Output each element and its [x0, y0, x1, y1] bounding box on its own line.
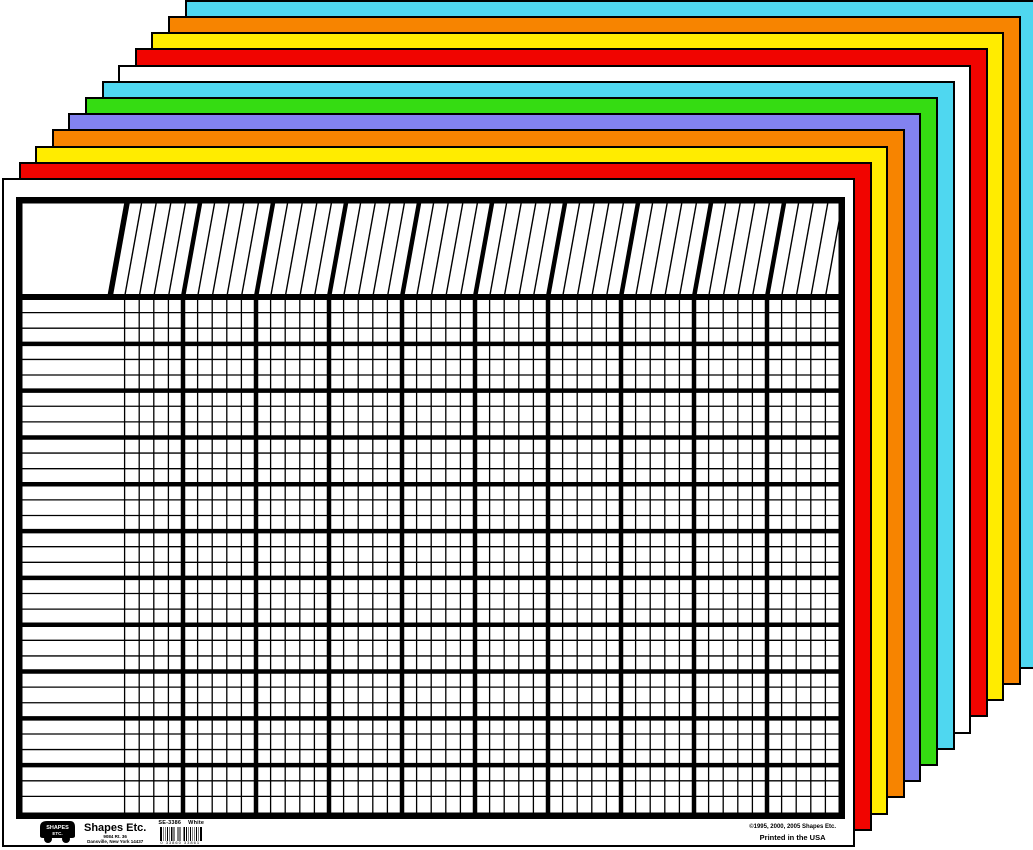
sheet-white-front: SHAPES ETC. Shapes Etc. 9084 Rt. 36 Dans… [2, 178, 855, 847]
shapes-etc-bus-logo-icon: SHAPES ETC. [37, 818, 77, 849]
barcode-digits: 0 33860 33861 [160, 841, 204, 845]
chart-footer: SHAPES ETC. Shapes Etc. 9084 Rt. 36 Dans… [4, 819, 853, 847]
copyright-line: ©1995, 2000, 2005 Shapes Etc. [749, 824, 836, 831]
brand-name: Shapes Etc. [84, 823, 146, 834]
copyright-block: ©1995, 2000, 2005 Shapes Etc. Printed in… [749, 824, 836, 842]
brand-block: Shapes Etc. 9084 Rt. 36 Dansville, New Y… [84, 823, 146, 844]
product-image-canvas: SHAPES ETC. Shapes Etc. 9084 Rt. 36 Dans… [0, 0, 1033, 850]
incentive-chart-grid [16, 197, 845, 819]
printed-in-usa-line: Printed in the USA [749, 834, 836, 842]
sku-color-name: White [188, 820, 204, 826]
upc-barcode [160, 827, 202, 841]
brand-address-line2: Dansville, New York 14437 [84, 839, 146, 844]
sku-line: SE-3386White [158, 820, 204, 826]
svg-text:ETC.: ETC. [52, 831, 62, 836]
barcode-block: SE-3386White 0 33860 33861 [158, 820, 204, 845]
sku-code: SE-3386 [158, 820, 181, 826]
